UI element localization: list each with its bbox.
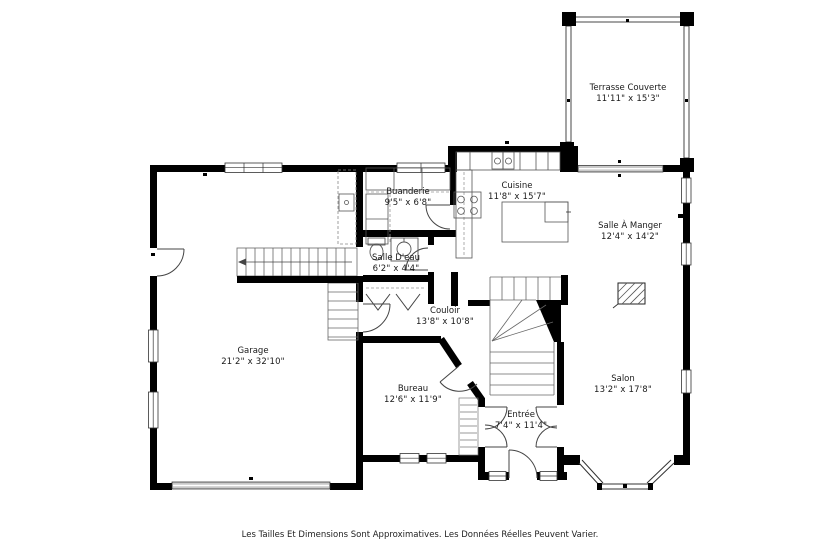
window-center-lines — [153, 163, 686, 476]
fireplace-icon — [613, 283, 645, 308]
main-staircase-icon — [490, 277, 561, 395]
windows — [149, 163, 692, 481]
bay-window — [579, 460, 674, 490]
toilet-icon — [368, 238, 385, 260]
exterior-walls — [150, 146, 690, 490]
kitchen-counter-top — [456, 152, 560, 170]
vanity-sink-icon — [391, 238, 418, 261]
powder-room-fixtures — [368, 238, 418, 261]
water-heater-icon — [338, 170, 356, 244]
kitchen-island — [502, 202, 571, 242]
floorplan-page: Terrasse Couverte11'11" x 15'3"Cuisine11… — [0, 0, 840, 560]
terrace-ticks — [567, 19, 688, 102]
entry-closet-shelves — [459, 398, 478, 455]
kitchen-sink-icon — [492, 152, 514, 169]
dimension-ticks — [151, 141, 683, 256]
terrace-posts — [560, 12, 694, 172]
terrace-structure — [560, 12, 694, 172]
garage-stairs-icon — [237, 248, 358, 340]
kitchen-fixtures — [454, 152, 571, 258]
patio-slider — [578, 160, 663, 177]
disclaimer-text: Les Tailles Et Dimensions Sont Approxima… — [0, 530, 840, 540]
floorplan-drawing — [0, 0, 840, 560]
stair-landing-wall — [237, 276, 363, 283]
stove-icon — [454, 192, 481, 218]
garage-door — [172, 477, 330, 489]
